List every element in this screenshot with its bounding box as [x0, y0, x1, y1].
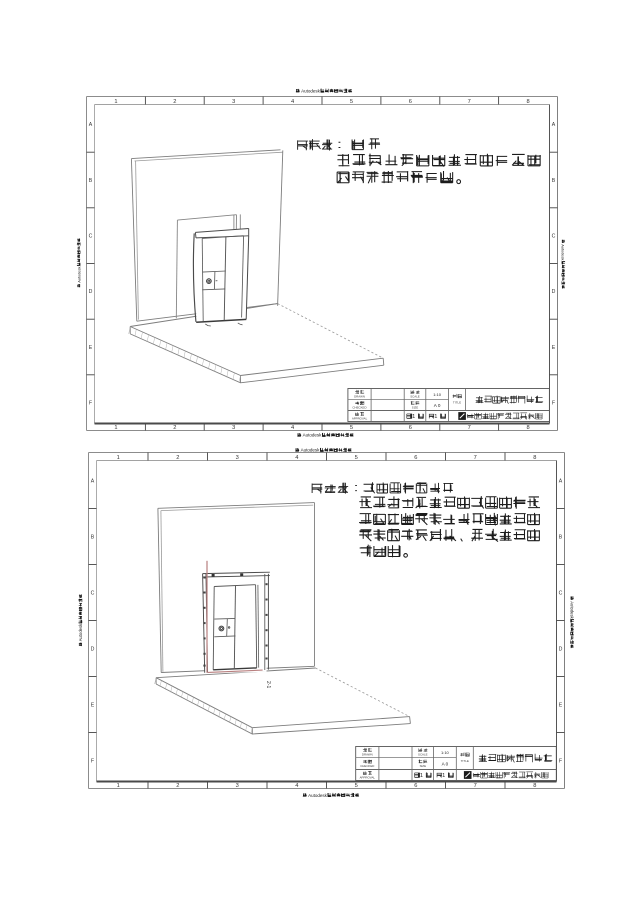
svg-text:7: 7	[474, 455, 477, 461]
svg-text:4: 4	[291, 425, 294, 431]
svg-text:DRAWN: DRAWN	[354, 395, 365, 399]
svg-text:7: 7	[468, 99, 471, 105]
svg-text:TITLE: TITLE	[453, 401, 461, 405]
svg-text:1: 1	[442, 773, 445, 779]
svg-text:8: 8	[533, 783, 536, 789]
svg-text:SCALE: SCALE	[410, 395, 420, 399]
svg-text:E: E	[89, 345, 93, 351]
svg-text:8: 8	[527, 425, 530, 431]
svg-text:A 0: A 0	[442, 762, 449, 767]
svg-text:1: 1	[117, 783, 120, 789]
svg-text:TITLE: TITLE	[461, 759, 469, 763]
svg-text:A 0: A 0	[434, 403, 441, 408]
svg-text:1: 1	[114, 99, 117, 105]
svg-text:F: F	[91, 758, 94, 764]
svg-text:A: A	[89, 122, 93, 128]
svg-text:D: D	[89, 289, 93, 295]
svg-text:C: C	[91, 590, 95, 596]
svg-text:2: 2	[173, 99, 176, 105]
svg-text:C: C	[559, 590, 563, 596]
svg-text:6: 6	[409, 99, 412, 105]
svg-text:F: F	[559, 758, 562, 764]
svg-text:F: F	[552, 401, 555, 407]
svg-text:2: 2	[176, 783, 179, 789]
svg-text:APPROVAL: APPROVAL	[360, 776, 376, 780]
svg-text:SCALE: SCALE	[418, 753, 428, 757]
svg-text:C: C	[552, 234, 556, 240]
svg-text:5: 5	[355, 455, 358, 461]
svg-text:6: 6	[414, 783, 417, 789]
svg-text:DRAWN: DRAWN	[362, 753, 373, 757]
svg-text:1: 1	[420, 773, 423, 779]
svg-text:F: F	[89, 401, 92, 407]
svg-text:Autodesk: Autodesk	[301, 89, 321, 94]
svg-text:D: D	[552, 289, 556, 295]
svg-text:A: A	[559, 478, 563, 484]
svg-text:1: 1	[117, 455, 120, 461]
svg-text:1: 1	[114, 425, 117, 431]
svg-text:6: 6	[409, 425, 412, 431]
svg-text:8: 8	[527, 99, 530, 105]
svg-text:2: 2	[176, 455, 179, 461]
svg-text:5: 5	[350, 425, 353, 431]
svg-text:A: A	[91, 478, 95, 484]
svg-text:5: 5	[355, 783, 358, 789]
svg-text:5: 5	[350, 99, 353, 105]
svg-text:B: B	[559, 534, 563, 540]
svg-text:7: 7	[474, 783, 477, 789]
svg-text:C: C	[89, 234, 93, 240]
svg-text:4: 4	[295, 455, 298, 461]
svg-text:Autodesk: Autodesk	[308, 793, 328, 798]
svg-text:Autodesk: Autodesk	[561, 244, 566, 260]
svg-text:6: 6	[414, 455, 417, 461]
svg-text:8: 8	[533, 455, 536, 461]
svg-text:D: D	[559, 646, 563, 652]
svg-text:7: 7	[468, 425, 471, 431]
svg-text:1:10: 1:10	[433, 392, 442, 397]
svg-text:CHECKED: CHECKED	[352, 406, 366, 410]
svg-text:Autodesk: Autodesk	[303, 433, 323, 438]
svg-text:SIZE: SIZE	[420, 764, 426, 768]
svg-text:E: E	[91, 702, 95, 708]
svg-text:3: 3	[236, 783, 239, 789]
svg-text:4: 4	[291, 99, 294, 105]
svg-text:1: 1	[434, 414, 437, 420]
svg-text:Autodesk: Autodesk	[569, 601, 574, 619]
svg-text:1: 1	[412, 414, 415, 420]
svg-text:SIZE: SIZE	[412, 406, 418, 410]
svg-text:APPROVAL: APPROVAL	[352, 417, 368, 421]
svg-text:Autodesk: Autodesk	[78, 623, 83, 641]
svg-text:B: B	[91, 534, 95, 540]
svg-text:3: 3	[232, 425, 235, 431]
svg-text:4: 4	[295, 783, 298, 789]
svg-text:1:10: 1:10	[441, 750, 450, 755]
svg-text:Autodesk: Autodesk	[301, 448, 321, 453]
svg-text:3: 3	[232, 99, 235, 105]
svg-text:3: 3	[236, 455, 239, 461]
svg-text:CHECKED: CHECKED	[360, 764, 374, 768]
svg-text:Autodesk: Autodesk	[76, 267, 81, 283]
svg-text:D: D	[91, 646, 95, 652]
svg-text:2: 2	[173, 425, 176, 431]
svg-text:B: B	[552, 178, 556, 184]
svg-text:E: E	[552, 345, 556, 351]
svg-text:2-1: 2-1	[265, 681, 271, 688]
svg-text:A: A	[552, 122, 556, 128]
svg-text:B: B	[89, 178, 93, 184]
svg-text:E: E	[559, 702, 563, 708]
